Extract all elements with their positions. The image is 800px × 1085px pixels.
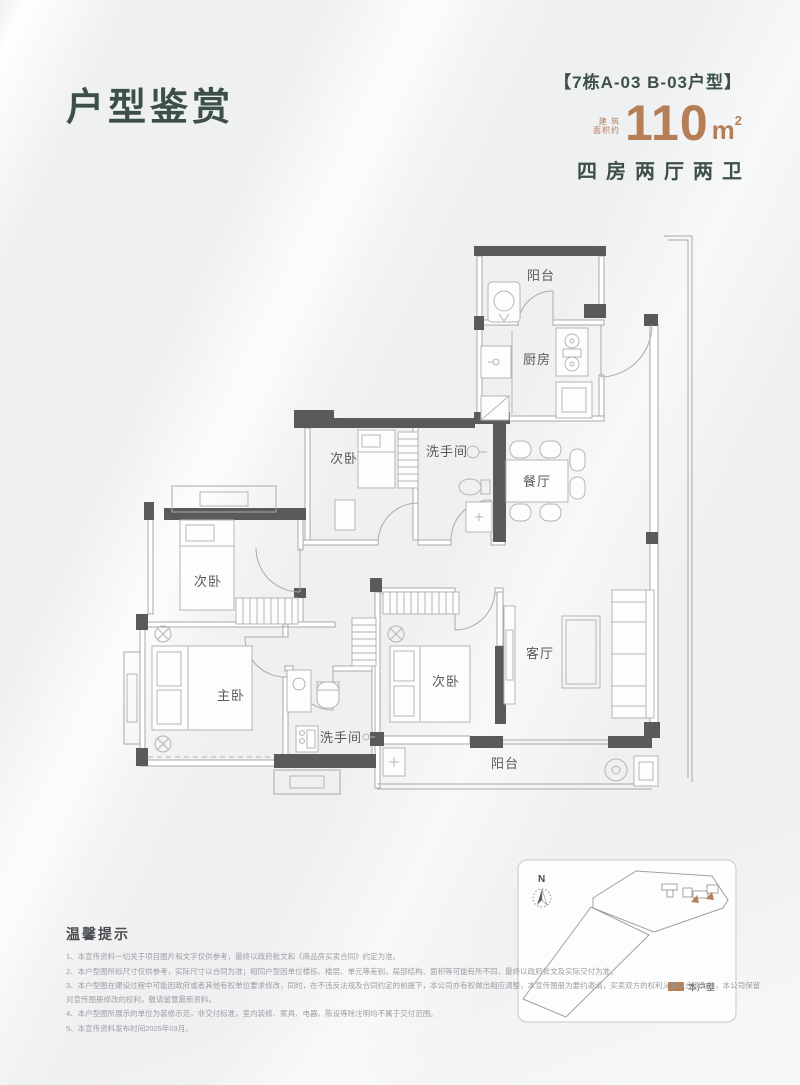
unit-header: 【7栋A-03 B-03户型】 建 筑 面积约 110 m2 四房两厅两卫 (482, 68, 742, 184)
room-label-bathroom-top: 洗手间 (426, 444, 468, 459)
room-label-dining: 餐厅 (523, 474, 551, 489)
tips-list: 1、本宣传资料一切关于项目图片和文字仅供参考，最终以政府批文和《商品房买卖合同》… (66, 950, 766, 1036)
room-label-bedroom-top: 次卧 (330, 451, 358, 466)
balcony-top-fixtures (488, 282, 520, 322)
area-superscript: 2 (735, 113, 742, 128)
room-label-balcony-top: 阳台 (527, 268, 555, 283)
room-label-living: 客厅 (526, 646, 554, 661)
bedroom-top-fixtures (335, 430, 418, 530)
north-label: N (538, 874, 545, 885)
room-label-master-bedroom: 主卧 (217, 688, 245, 703)
layout-description: 四房两厅两卫 (482, 155, 751, 184)
tips-heading: 温馨提示 (66, 924, 130, 944)
poster-page: 户型鉴赏 【7栋A-03 B-03户型】 建 筑 面积约 110 m2 四房两厅… (0, 0, 800, 1085)
area-value: 110 (625, 101, 709, 145)
tip-item: 3、本户型图在建设过程中可能因政府或者其他有权单位要求修改，同时，在不违反法规及… (66, 979, 766, 1006)
tip-item: 2、本户型图所标尺寸仅供参考，实际尺寸以合同为准；相同户型因单位楼栋、楼层、单元… (66, 965, 766, 979)
area-unit: m2 (712, 106, 742, 145)
bedroom-mid-fixtures (352, 592, 470, 722)
room-label-bathroom-bottom: 洗手间 (320, 730, 362, 745)
bedroom-left-fixtures (180, 520, 298, 624)
area-row: 建 筑 面积约 110 m2 (482, 101, 742, 145)
tip-item: 1、本宣传资料一切关于项目图片和文字仅供参考，最终以政府批文和《商品房买卖合同》… (66, 950, 766, 964)
area-prefix: 建 筑 面积约 (593, 117, 620, 135)
unit-tag: 【7栋A-03 B-03户型】 (482, 68, 742, 93)
tip-item: 4、本户型图所展示的单位为装修示范，非交付标准，室内装修、家具、电器、陈设等除注… (66, 1007, 766, 1021)
balcony-bottom-fixtures (383, 748, 658, 786)
room-label-bedroom-left: 次卧 (194, 574, 222, 589)
master-bedroom-fixtures (148, 626, 274, 757)
floor-plan: 阳台 厨房 次卧 洗手间 餐厅 次卧 主卧 洗手间 次卧 客厅 阳台 (120, 228, 700, 808)
room-label-balcony-bottom: 阳台 (491, 756, 519, 771)
room-label-kitchen: 厨房 (523, 352, 551, 367)
room-label-bedroom-mid: 次卧 (432, 674, 460, 689)
tip-item: 5、本宣传资料发布时间2025年03月。 (66, 1022, 766, 1036)
page-title: 户型鉴赏 (66, 76, 234, 131)
kitchen-fixtures (481, 328, 592, 420)
